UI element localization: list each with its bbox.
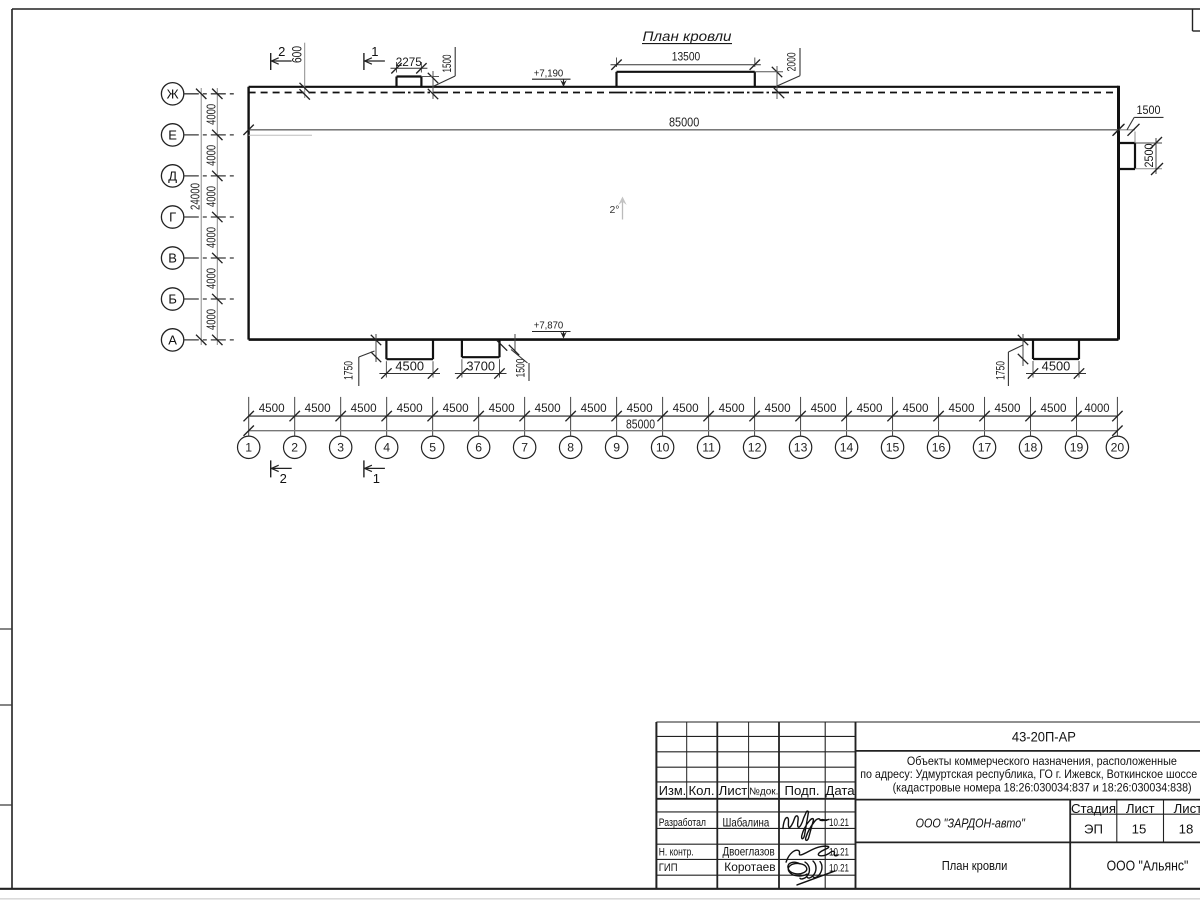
svg-text:3700: 3700 <box>466 360 495 374</box>
svg-text:1500: 1500 <box>514 358 528 377</box>
svg-text:17: 17 <box>978 441 992 455</box>
svg-text:13: 13 <box>794 441 808 455</box>
svg-text:4: 4 <box>383 441 390 455</box>
svg-text:4500: 4500 <box>397 401 423 415</box>
svg-text:№док.: №док. <box>749 786 778 797</box>
svg-text:ГИП: ГИП <box>659 862 678 874</box>
svg-text:43-20П-АР: 43-20П-АР <box>1012 728 1076 744</box>
svg-text:12: 12 <box>748 441 762 455</box>
svg-text:А: А <box>168 333 177 348</box>
svg-text:4500: 4500 <box>949 401 975 415</box>
svg-text:14: 14 <box>840 441 854 455</box>
svg-text:ЭП: ЭП <box>1084 822 1103 837</box>
svg-text:Б: Б <box>168 292 177 307</box>
svg-text:4500: 4500 <box>627 401 653 415</box>
svg-text:2°: 2° <box>609 204 619 216</box>
svg-text:Е: Е <box>168 128 177 143</box>
svg-text:Шабалина: Шабалина <box>723 815 770 829</box>
svg-text:13500: 13500 <box>672 50 701 64</box>
svg-text:4500: 4500 <box>1042 360 1071 374</box>
svg-text:4500: 4500 <box>719 401 745 415</box>
svg-text:4000: 4000 <box>203 268 218 289</box>
svg-text:4000: 4000 <box>203 104 218 125</box>
svg-text:4000: 4000 <box>203 309 218 330</box>
svg-text:1: 1 <box>373 471 380 486</box>
svg-text:2: 2 <box>291 441 298 455</box>
svg-text:15: 15 <box>1132 822 1147 837</box>
svg-text:ООО "ЗАРДОН-авто": ООО "ЗАРДОН-авто" <box>916 815 1027 830</box>
svg-text:Н. контр.: Н. контр. <box>659 846 694 858</box>
svg-text:+7,190: +7,190 <box>534 67 564 79</box>
svg-text:Изм.: Изм. <box>659 783 686 798</box>
svg-text:4500: 4500 <box>259 401 285 415</box>
svg-text:1500: 1500 <box>440 54 454 72</box>
svg-text:Коротаев: Коротаев <box>724 860 775 874</box>
svg-text:4500: 4500 <box>857 401 883 415</box>
svg-text:600: 600 <box>290 46 305 63</box>
svg-text:85000: 85000 <box>669 115 699 129</box>
svg-text:2000: 2000 <box>785 52 799 71</box>
svg-text:4500: 4500 <box>351 401 377 415</box>
svg-text:Лист: Лист <box>719 783 748 798</box>
svg-text:85000: 85000 <box>626 417 655 432</box>
svg-text:Листов: Листов <box>1174 801 1200 816</box>
svg-text:16: 16 <box>932 441 946 455</box>
svg-text:2500: 2500 <box>1142 143 1156 167</box>
svg-text:4500: 4500 <box>995 401 1021 415</box>
svg-text:5: 5 <box>429 441 436 455</box>
svg-text:11: 11 <box>702 441 715 455</box>
svg-text:10.21: 10.21 <box>829 846 849 858</box>
svg-text:4500: 4500 <box>305 401 331 415</box>
svg-text:Стадия: Стадия <box>1071 801 1116 816</box>
svg-text:3: 3 <box>337 441 344 455</box>
svg-text:4000: 4000 <box>203 186 218 207</box>
svg-text:4500: 4500 <box>673 401 699 415</box>
svg-text:1: 1 <box>371 44 378 59</box>
svg-text:18: 18 <box>1024 441 1038 455</box>
svg-text:9: 9 <box>613 441 620 455</box>
svg-text:20: 20 <box>1111 441 1125 455</box>
svg-text:4500: 4500 <box>903 401 929 415</box>
svg-text:Д: Д <box>168 169 177 184</box>
svg-text:4500: 4500 <box>535 401 561 415</box>
svg-text:План кровли: План кровли <box>942 859 1008 873</box>
svg-text:4000: 4000 <box>203 227 218 248</box>
svg-text:Подп.: Подп. <box>784 783 819 798</box>
svg-text:2: 2 <box>280 471 287 486</box>
svg-text:В: В <box>168 251 177 266</box>
svg-text:4500: 4500 <box>395 360 424 374</box>
svg-text:ООО "Альянс": ООО "Альянс" <box>1107 857 1189 874</box>
svg-text:+7,870: +7,870 <box>534 320 564 332</box>
svg-text:10.21: 10.21 <box>829 817 849 829</box>
svg-text:6: 6 <box>475 441 482 455</box>
svg-text:2275: 2275 <box>396 55 422 69</box>
svg-text:Кол.: Кол. <box>688 783 714 798</box>
svg-text:Ж: Ж <box>167 86 179 101</box>
svg-text:План кровли: План кровли <box>643 28 732 44</box>
svg-text:4000: 4000 <box>203 145 218 166</box>
svg-text:4500: 4500 <box>489 401 515 415</box>
svg-text:15: 15 <box>886 441 900 455</box>
svg-text:4500: 4500 <box>765 401 791 415</box>
svg-text:4500: 4500 <box>811 401 837 415</box>
svg-text:24000: 24000 <box>187 183 202 210</box>
svg-text:по адресу: Удмуртская республи: по адресу: Удмуртская республика, ГО г. … <box>860 767 1197 781</box>
svg-text:4500: 4500 <box>1041 401 1067 415</box>
svg-text:1: 1 <box>245 441 252 455</box>
svg-text:4500: 4500 <box>443 401 469 415</box>
svg-text:2: 2 <box>278 44 285 59</box>
svg-text:Лист: Лист <box>1126 801 1155 816</box>
svg-text:Дата: Дата <box>825 783 855 798</box>
svg-text:1750: 1750 <box>994 361 1008 380</box>
svg-text:10: 10 <box>656 441 670 455</box>
svg-text:4000: 4000 <box>1084 401 1109 415</box>
svg-text:Разработал: Разработал <box>659 817 706 829</box>
svg-text:4500: 4500 <box>581 401 607 415</box>
svg-text:Двоеглазов: Двоеглазов <box>723 845 775 859</box>
svg-text:19: 19 <box>1070 441 1084 455</box>
svg-text:18: 18 <box>1179 822 1194 837</box>
svg-text:7: 7 <box>521 441 528 455</box>
svg-text:(кадастровые номера 18:26:0300: (кадастровые номера 18:26:030034:837 и 1… <box>893 780 1192 794</box>
svg-text:Г: Г <box>169 210 176 225</box>
svg-text:Объекты коммерческого назначен: Объекты коммерческого назначения, распол… <box>907 754 1177 768</box>
svg-text:1750: 1750 <box>342 361 356 380</box>
svg-text:1500: 1500 <box>1137 103 1161 117</box>
svg-text:8: 8 <box>567 441 574 455</box>
